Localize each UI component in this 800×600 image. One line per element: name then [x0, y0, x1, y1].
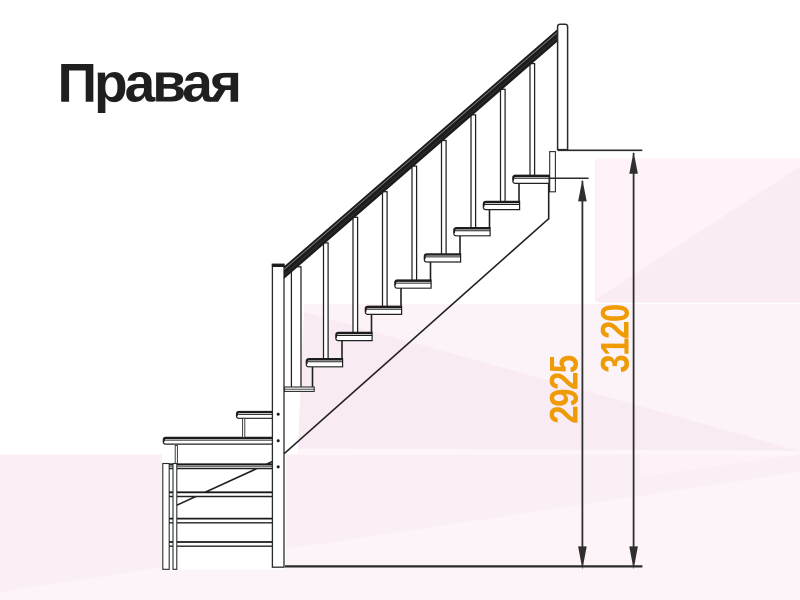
svg-text:3120: 3120	[593, 305, 638, 373]
svg-text:2925: 2925	[541, 355, 586, 423]
svg-text:Правая: Правая	[58, 51, 239, 113]
